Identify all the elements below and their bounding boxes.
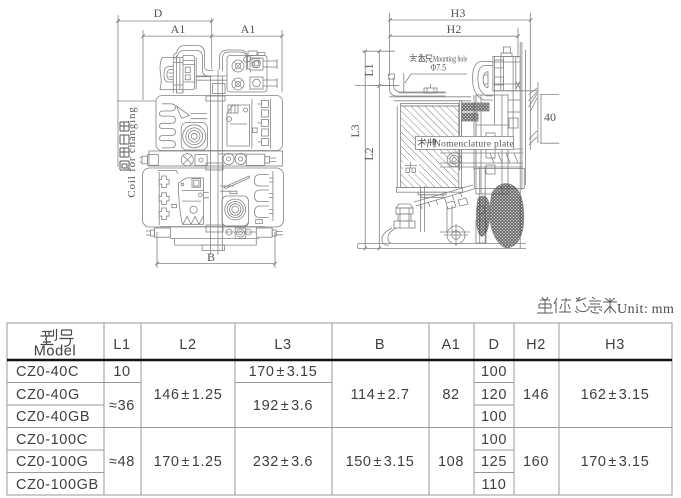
- svg-text:170 ± 3.15: 170 ± 3.15: [249, 364, 318, 380]
- svg-text:146 ± 1.25: 146 ± 1.25: [154, 387, 223, 403]
- svg-text:Φ7.5: Φ7.5: [431, 63, 447, 73]
- svg-text:160: 160: [523, 454, 549, 470]
- svg-text:192 ± 3.6: 192 ± 3.6: [253, 398, 313, 414]
- svg-text:114 ± 2.7: 114 ± 2.7: [350, 387, 409, 403]
- svg-text:100: 100: [481, 432, 507, 448]
- svg-text:H3: H3: [451, 6, 466, 20]
- svg-text:D: D: [154, 6, 163, 20]
- svg-text:150 ± 3.15: 150 ± 3.15: [346, 454, 415, 470]
- svg-text:CZ0-40G: CZ0-40G: [16, 387, 80, 403]
- svg-text:10: 10: [113, 364, 130, 380]
- svg-text:110: 110: [482, 477, 507, 493]
- svg-text:L2: L2: [362, 147, 376, 160]
- svg-text:232 ± 3.6: 232 ± 3.6: [253, 454, 313, 470]
- svg-text:L3: L3: [274, 337, 291, 353]
- svg-text:146: 146: [523, 387, 549, 403]
- svg-text:A1: A1: [442, 337, 461, 353]
- svg-text:100: 100: [481, 364, 507, 380]
- svg-text:CZ0-100GB: CZ0-100GB: [16, 477, 99, 493]
- svg-text:100: 100: [481, 409, 507, 425]
- svg-text:L3: L3: [348, 124, 362, 137]
- svg-text:125: 125: [481, 454, 507, 470]
- svg-text:162 ± 3.15: 162 ± 3.15: [581, 387, 650, 403]
- svg-text:B: B: [375, 337, 385, 353]
- svg-text:L1: L1: [362, 63, 376, 76]
- svg-text:CZ0-100C: CZ0-100C: [16, 432, 88, 448]
- svg-text:≈36: ≈36: [109, 398, 135, 414]
- svg-text:H3: H3: [605, 337, 625, 353]
- svg-text:D: D: [488, 337, 499, 353]
- svg-text:CZ0-100G: CZ0-100G: [16, 454, 89, 470]
- svg-text:CZ0-40GB: CZ0-40GB: [16, 409, 90, 425]
- svg-text:108: 108: [438, 454, 464, 470]
- svg-text:Coil for changing: Coil for changing: [126, 106, 138, 197]
- svg-text:170 ± 3.15: 170 ± 3.15: [581, 454, 650, 470]
- svg-text:B: B: [207, 250, 215, 264]
- svg-text:CZ0-40C: CZ0-40C: [16, 364, 79, 380]
- svg-text:40: 40: [544, 110, 556, 124]
- svg-text:120: 120: [481, 387, 507, 403]
- svg-text:Unit: mm: Unit: mm: [617, 302, 674, 317]
- svg-text:170 ± 1.25: 170 ± 1.25: [154, 454, 223, 470]
- svg-text:L2: L2: [179, 337, 196, 353]
- svg-text:A1: A1: [241, 22, 256, 36]
- svg-text:Model: Model: [34, 344, 77, 360]
- svg-text:82: 82: [442, 387, 459, 403]
- svg-text:Nomenclature plate: Nomenclature plate: [434, 140, 514, 150]
- svg-text:H2: H2: [526, 337, 546, 353]
- svg-text:≈48: ≈48: [109, 454, 135, 470]
- svg-text:L1: L1: [113, 337, 130, 353]
- svg-text:H2: H2: [447, 22, 462, 36]
- svg-text:A1: A1: [171, 22, 186, 36]
